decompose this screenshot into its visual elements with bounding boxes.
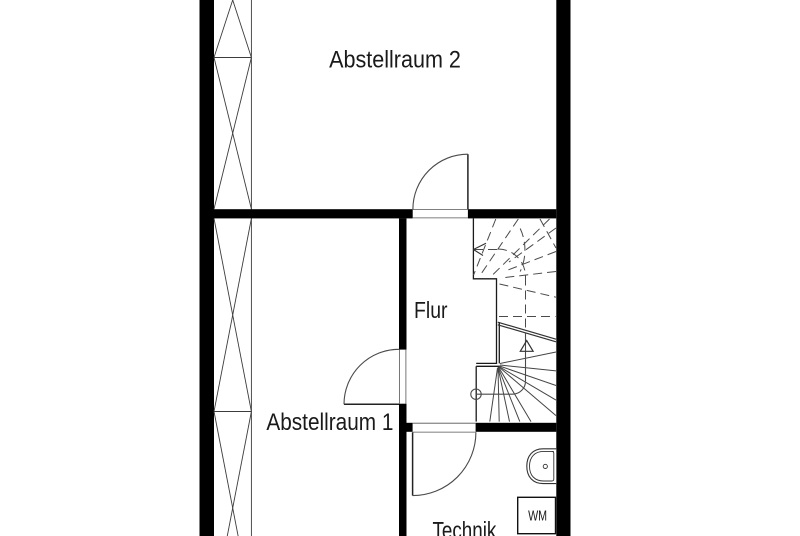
svg-text:Technik: Technik [433, 517, 498, 536]
svg-text:Abstellraum 1: Abstellraum 1 [266, 409, 393, 436]
svg-text:Abstellraum 2: Abstellraum 2 [329, 47, 461, 74]
svg-text:Flur: Flur [414, 297, 448, 323]
svg-text:WM: WM [528, 508, 547, 524]
